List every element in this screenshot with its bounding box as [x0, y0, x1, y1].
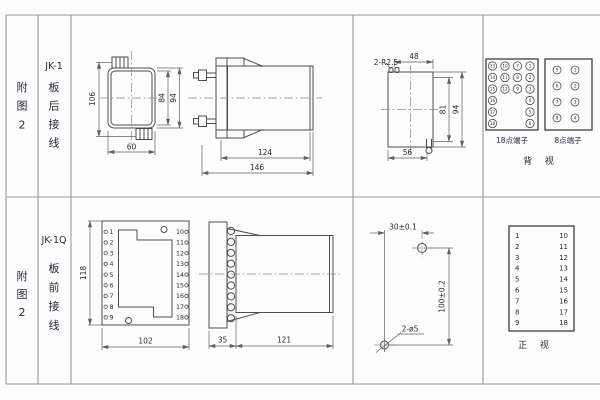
terminal-number-circle [104, 241, 107, 244]
row1-wiring-label: 板后接线 [49, 80, 60, 150]
terminal-number-circle [104, 316, 107, 319]
terminal-number: 13 [559, 265, 568, 273]
terminal-number: 15 [559, 287, 568, 295]
rear-view-label: 背 视 [523, 155, 559, 167]
t8-row: 62 [553, 82, 579, 90]
terminal-number: 13 [176, 261, 184, 268]
terminal-number-circle [185, 252, 188, 255]
terminal-number: 14 [559, 276, 568, 284]
dim-hole-spacing-y: 100±0.2 [438, 280, 447, 313]
dim-outer-height: 94 [169, 93, 178, 103]
row1-figure-label: 附图2 [17, 80, 28, 131]
mounting-hole-bottom [126, 318, 132, 324]
terminal-number-circle [104, 262, 107, 265]
dim-body-length: 124 [258, 148, 273, 157]
dim-top-width: 48 [409, 52, 419, 61]
terminal-block-top [112, 57, 128, 68]
terminal-number-circle [104, 273, 107, 276]
terminal-number: 6 [529, 121, 532, 126]
wiring-label-char: 板 [49, 80, 60, 94]
figure-label-char: 附 [17, 80, 28, 94]
dim-width: 60 [127, 143, 137, 152]
front-terminal-table: 123456789 101112131415161718 正 视 [509, 226, 574, 351]
terminal-number: 13 [490, 64, 496, 69]
leader-line [376, 333, 401, 353]
terminal-number: 11 [502, 75, 508, 80]
front-view-label: 正 视 [518, 339, 554, 351]
relay-base-outline [119, 230, 173, 317]
terminal-number-circle [104, 252, 107, 255]
terminal-number: 4 [574, 116, 577, 121]
terminal-number: 3 [110, 250, 114, 257]
terminal-number-circle [104, 230, 107, 233]
terminal-number: 18 [490, 121, 496, 126]
terminal-block-bottom [136, 129, 152, 140]
terminal-number: 8 [515, 308, 519, 316]
terminal-number: 18 [559, 319, 568, 327]
terminal-number: 2 [515, 243, 519, 251]
dim-height: 94 [452, 105, 461, 115]
dim-flange-depth: 35 [218, 336, 228, 345]
terminal-number: 8 [110, 304, 114, 311]
drawing-canvas: 附图2 JK-1 板后接线 [0, 0, 600, 400]
table-left-numbers: 123456789 [515, 232, 520, 327]
wiring-label-char: 接 [49, 300, 60, 313]
dim-width: 56 [403, 148, 413, 157]
terminal-number: 15 [176, 283, 184, 290]
holes-callout: 2-ø5 [402, 325, 419, 334]
terminal-screw-bottom [194, 116, 217, 127]
jk1-case-rear-view: 106 84 94 60 [88, 51, 183, 155]
front-plate [209, 222, 227, 328]
terminal-number: 10 [502, 64, 508, 69]
front-right-terminals: 101112131415161718 [176, 229, 188, 322]
wiring-label-char: 前 [49, 280, 60, 294]
terminal-number: 8 [516, 75, 519, 80]
wiring-label-char: 线 [49, 318, 60, 332]
terminal-number: 4 [515, 265, 520, 273]
row2-figure-label: 附图2 [17, 269, 28, 319]
terminal-number: 17 [176, 304, 184, 311]
terminal-number: 11 [176, 240, 184, 247]
t18-row: 131071 [488, 62, 534, 70]
figure-label-char: 图 [17, 288, 28, 301]
terminal-number: 3 [529, 87, 532, 92]
table-right-numbers: 101112131415161718 [559, 232, 568, 327]
dim-width: 102 [138, 337, 153, 346]
front-left-terminals: 123456789 [104, 229, 114, 322]
terminal-number: 5 [529, 110, 532, 115]
terminal-number-circle [185, 294, 188, 297]
terminal-number: 9 [515, 319, 519, 327]
dim-height: 106 [88, 92, 97, 107]
t18-row: 186 [488, 119, 534, 127]
terminal-number: 7 [110, 293, 114, 300]
wiring-label-char: 线 [49, 136, 60, 150]
terminal-number: 1 [529, 64, 532, 69]
terminal-number: 14 [490, 75, 496, 80]
terminal-number: 10 [176, 229, 184, 236]
dim-hole-spacing-x: 30±0.1 [389, 223, 417, 232]
terminal-number-circle [185, 262, 188, 265]
terminal-number-circle [104, 284, 107, 287]
terminal-number: 1 [574, 68, 577, 73]
terminal-number: 7 [515, 297, 519, 305]
bracket-bottom [216, 130, 244, 138]
jk1q-front-view: 123456789 101112131415161718 118 102 [79, 221, 189, 350]
terminal-number-circle [185, 241, 188, 244]
terminal-number: 11 [559, 243, 568, 251]
terminal-number: 14 [176, 272, 184, 279]
terminal-number: 15 [490, 87, 496, 92]
jk1q-side-view: 35 121 [199, 222, 340, 349]
terminal-number: 16 [490, 98, 496, 103]
t8-row: 84 [553, 114, 579, 122]
bracket-top [216, 58, 244, 66]
dim-height: 118 [79, 266, 88, 281]
terminal-number: 8 [556, 116, 559, 121]
terminal-number: 5 [556, 68, 559, 73]
row2-wiring-label: 板前接线 [49, 261, 60, 332]
wiring-label-char: 后 [49, 100, 60, 113]
terminal-number: 9 [516, 87, 519, 92]
terminal-number: 9 [110, 315, 114, 322]
terminal-number: 12 [559, 254, 568, 262]
terminal-number: 16 [176, 293, 184, 300]
jk1-panel-cutout-view: 2-R2.5 48 81 94 56 [374, 52, 466, 161]
dimension-lines [96, 63, 183, 156]
terminal-number: 2 [574, 84, 577, 89]
jk1q-drilling-plan: 30±0.1 100±0.2 2-ø5 [370, 223, 453, 353]
terminal-number-circle [185, 273, 188, 276]
t18-row: 164 [488, 96, 534, 104]
terminal-number-circle [185, 284, 188, 287]
rear-terminal-views: 131071 141182 151293 164 175 186 51 62 7… [486, 59, 592, 167]
terminal-screw-top [194, 70, 217, 81]
terminal-number: 2 [110, 240, 114, 247]
jk1-side-view: 124 146 [188, 58, 322, 176]
terminal-number: 7 [516, 64, 519, 69]
terminal-number: 4 [529, 98, 532, 103]
t18-row: 151293 [488, 85, 534, 93]
figure-label-char: 附 [17, 269, 28, 283]
terminal-number: 3 [515, 254, 519, 262]
terminal-number-circle [104, 294, 107, 297]
terminal-number: 7 [556, 100, 559, 105]
terminal-number-circle [185, 230, 188, 233]
terminal-number: 1 [515, 232, 519, 240]
relay-dimension-drawing-sheet: 附图2 JK-1 板后接线 [0, 0, 600, 400]
dim-corner-radius: 2-R2.5 [374, 58, 399, 67]
terminal-number: 17 [490, 110, 496, 115]
terminal-number: 3 [574, 100, 577, 105]
terminal-box-18-label: 18点端子 [496, 135, 529, 145]
figure-label-char: 图 [17, 100, 28, 113]
table-grid [6, 15, 600, 384]
terminal-number: 6 [556, 84, 559, 89]
terminal-number: 4 [110, 261, 114, 268]
terminal-number: 5 [515, 276, 519, 284]
row1-model-label: JK-1 [44, 61, 63, 72]
terminal-number: 18 [176, 315, 184, 322]
terminal-number-circle [185, 316, 188, 319]
dim-inner-height: 81 [439, 105, 448, 115]
terminal-number-circle [185, 305, 188, 308]
row2-model-label: JK-1Q [41, 235, 67, 246]
terminal-number: 16 [559, 297, 568, 305]
t8-row: 51 [553, 66, 579, 74]
terminal-number: 17 [559, 308, 568, 316]
terminal-number: 12 [502, 87, 508, 92]
wiring-label-char: 板 [49, 261, 60, 275]
t8-row: 73 [553, 98, 579, 106]
figure-label-char: 2 [19, 306, 26, 319]
t18-row: 141182 [488, 73, 534, 81]
terminal-box-8-label: 8点端子 [554, 135, 582, 145]
t18-row: 175 [488, 108, 534, 116]
dim-body-length: 121 [277, 336, 292, 345]
mounting-hole-top [161, 227, 167, 233]
terminal-number: 2 [529, 75, 532, 80]
terminal-number: 6 [515, 287, 520, 295]
dim-inner-height: 84 [158, 93, 167, 103]
terminal-number: 6 [110, 283, 114, 290]
dim-total-length: 146 [250, 163, 265, 172]
ground-screw [426, 139, 432, 154]
terminal-number: 5 [110, 272, 114, 279]
terminal-number: 1 [110, 229, 114, 236]
terminal-number-circle [104, 305, 107, 308]
terminal-screw-column [227, 227, 234, 321]
wiring-label-char: 接 [49, 118, 60, 131]
terminal-number: 12 [176, 250, 184, 257]
figure-label-char: 2 [19, 118, 26, 131]
terminal-box-8 [545, 59, 592, 130]
terminal-number: 10 [559, 232, 568, 240]
